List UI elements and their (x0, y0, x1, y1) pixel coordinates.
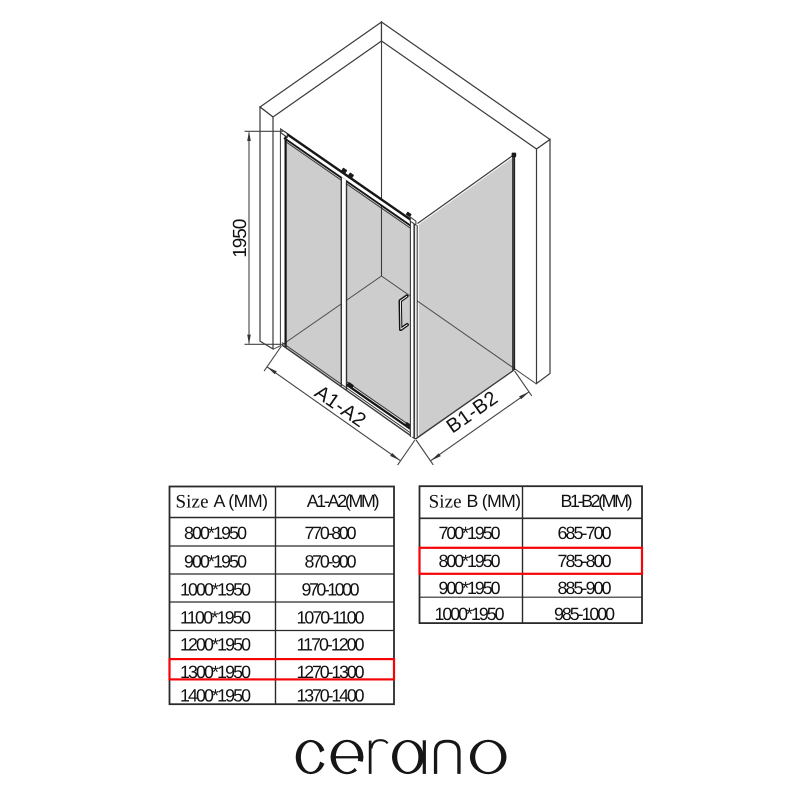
svg-text:700*1950: 700*1950 (439, 523, 501, 543)
svg-text:B (MM): B (MM) (467, 491, 522, 511)
svg-text:1400*1950: 1400*1950 (180, 685, 251, 705)
svg-text:1170-1200: 1170-1200 (297, 635, 365, 655)
svg-text:A1-A2(MM): A1-A2(MM) (307, 491, 380, 511)
svg-text:1950: 1950 (230, 219, 251, 258)
svg-text:1200*1950: 1200*1950 (180, 635, 251, 655)
svg-text:970-1000: 970-1000 (302, 579, 360, 599)
svg-text:800*1950: 800*1950 (184, 523, 247, 543)
svg-text:1100*1950: 1100*1950 (180, 608, 251, 628)
svg-text:1370-1400: 1370-1400 (297, 685, 365, 705)
svg-text:985-1000: 985-1000 (554, 604, 615, 624)
svg-text:1070-1100: 1070-1100 (297, 608, 365, 628)
svg-text:Size: Size (176, 492, 209, 513)
svg-text:900*1950: 900*1950 (439, 578, 501, 598)
svg-text:870-900: 870-900 (305, 551, 357, 571)
svg-text:1000*1950: 1000*1950 (180, 579, 251, 599)
svg-text:885-900: 885-900 (558, 578, 612, 598)
svg-text:770-800: 770-800 (305, 523, 357, 543)
svg-text:A (MM): A (MM) (214, 491, 269, 511)
svg-text:900*1950: 900*1950 (184, 551, 247, 571)
svg-text:1000*1950: 1000*1950 (435, 604, 505, 624)
svg-text:685-700: 685-700 (558, 523, 612, 543)
svg-text:Size: Size (429, 492, 462, 513)
svg-text:785-800: 785-800 (558, 551, 612, 571)
svg-text:B1-B2(MM): B1-B2(MM) (561, 491, 633, 511)
svg-text:800*1950: 800*1950 (439, 551, 501, 571)
